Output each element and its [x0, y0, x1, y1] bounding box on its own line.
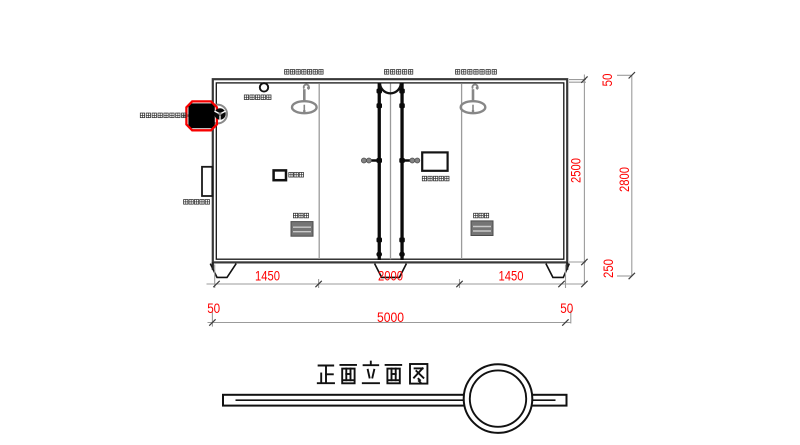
- svg-text:2000: 2000: [378, 268, 403, 284]
- svg-text:1450: 1450: [255, 268, 280, 284]
- svg-text:1450: 1450: [499, 268, 524, 284]
- svg-text:50: 50: [599, 73, 615, 86]
- svg-text:50: 50: [560, 300, 573, 316]
- svg-text:2800: 2800: [616, 167, 632, 192]
- svg-text:5000: 5000: [377, 309, 404, 325]
- svg-text:2500: 2500: [568, 158, 584, 183]
- svg-text:250: 250: [600, 259, 616, 278]
- svg-text:50: 50: [207, 300, 220, 316]
